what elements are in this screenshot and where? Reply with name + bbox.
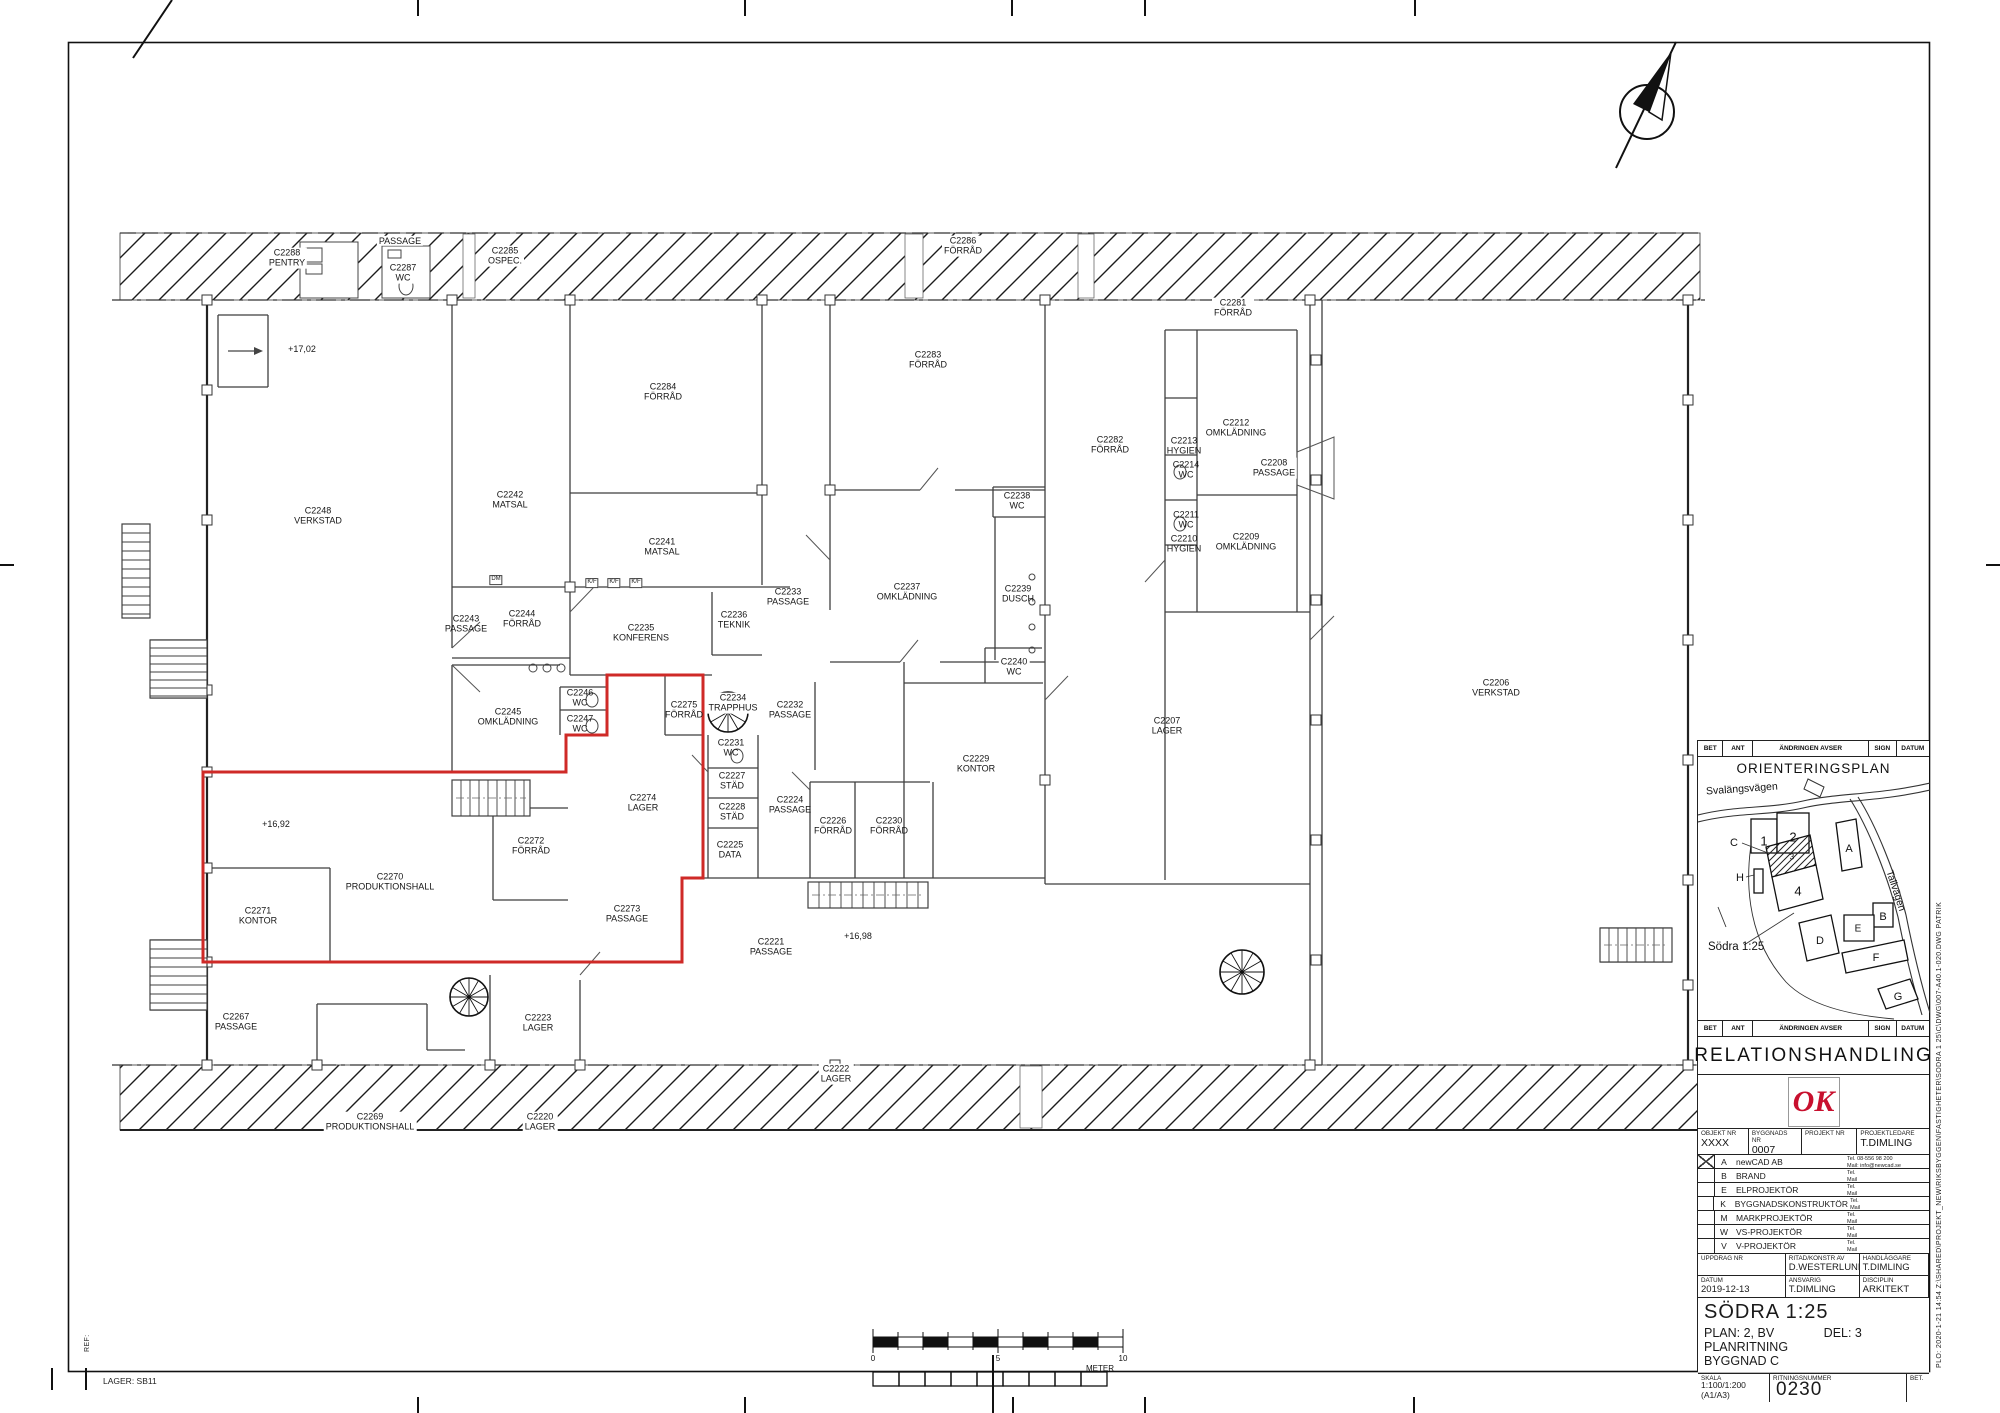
drawing-number-field: RITNINGSNUMMER 0007-A40.1-0230 xyxy=(1770,1374,1907,1402)
floor-plan-drawing: C2288PENTRYPASSAGEC2287WCC2285OSPEC.C228… xyxy=(0,0,2000,1413)
room-label: C2286FÖRRÅD xyxy=(942,236,984,257)
consultant-row: MMARKPROJEKTÖRTel.Mail xyxy=(1698,1211,1929,1225)
bet-label: BET. xyxy=(1910,1375,1926,1382)
room-label: C2285OSPEC. xyxy=(486,246,524,267)
room-label: C2244FÖRRÅD xyxy=(503,609,541,630)
bet-field: BET. xyxy=(1907,1374,1929,1402)
room-label: C2273PASSAGE xyxy=(606,904,648,925)
orientation-building-label: 3 xyxy=(1790,853,1794,862)
room-label: C2270PRODUKTIONSHALL xyxy=(346,872,435,893)
room-label: C2272FÖRRÅD xyxy=(512,836,550,857)
room-label: C2221PASSAGE xyxy=(750,937,792,958)
room-label: C2234TRAPPHUS xyxy=(706,693,759,714)
room-label: C2212OMKLÄDNING xyxy=(1206,418,1267,439)
room-label: C2223LAGER xyxy=(523,1013,554,1034)
sanitary-fixtures xyxy=(529,465,1186,763)
fixture-label: K/F xyxy=(629,578,642,588)
info-field: UPPDRAG NR xyxy=(1698,1254,1786,1276)
room-label: C2230FÖRRÅD xyxy=(870,816,908,837)
room-label: C2242MATSAL xyxy=(492,490,527,511)
orientation-building-label: B xyxy=(1879,911,1886,923)
room-label: C2227STÄD xyxy=(719,771,746,792)
rev-header-cell: SIGN xyxy=(1869,741,1897,756)
orientation-title: ORIENTERINGSPLAN xyxy=(1698,761,1929,776)
room-label: C2229KONTOR xyxy=(957,754,995,775)
room-label: C2282FÖRRÅD xyxy=(1091,435,1129,456)
info-field: DATUM2019-12-13 xyxy=(1698,1276,1786,1298)
rev-header-cell: ANT xyxy=(1723,1021,1753,1036)
room-label: C2210HYGIEN xyxy=(1167,534,1202,555)
ref-margin-text: REF: xyxy=(84,1334,91,1352)
level-annotation: +17,02 xyxy=(288,344,316,354)
scale-bar xyxy=(873,1329,1123,1353)
room-label: C2240WC xyxy=(999,657,1030,678)
orientation-building-label: C xyxy=(1730,837,1738,849)
level-annotation: +16,98 xyxy=(844,931,872,941)
scale-tick-5: 5 xyxy=(996,1354,1000,1363)
room-label: C2247WC xyxy=(567,714,594,735)
fixture-label: DM xyxy=(489,575,502,585)
orientation-building-label: F xyxy=(1873,952,1880,964)
scale-tick-0: 0 xyxy=(871,1354,875,1363)
orientation-building-label: G xyxy=(1894,991,1903,1003)
room-label: PASSAGE xyxy=(377,236,423,246)
project-field: OBJEKT NRXXXX xyxy=(1698,1129,1749,1154)
orientation-building-label: D xyxy=(1816,935,1824,947)
room-label: C2220LAGER xyxy=(523,1112,558,1133)
room-label: C2214WC xyxy=(1173,460,1200,481)
drawing-title-area: SÖDRA 1:25 xyxy=(1704,1301,1923,1324)
rev-header-cell: ANT xyxy=(1723,741,1753,756)
interior-walls xyxy=(150,300,1672,1065)
room-label: C2271KONTOR xyxy=(239,906,277,927)
room-label: C2287WC xyxy=(388,263,419,284)
room-label: C2283FÖRRÅD xyxy=(909,350,947,371)
room-label: C2226FÖRRÅD xyxy=(814,816,852,837)
room-label: C2284FÖRRÅD xyxy=(644,382,682,403)
info-field: DISCIPLINARKITEKT xyxy=(1860,1276,1929,1298)
rev-header-cell: BET xyxy=(1698,741,1723,756)
consultant-table: AnewCAD ABTel. 08-556 98 200Mail: info@n… xyxy=(1698,1155,1929,1254)
room-label: C2237OMKLÄDNING xyxy=(877,582,938,603)
project-field: BYGGNADS NR0007 xyxy=(1749,1129,1802,1154)
project-fields: OBJEKT NRXXXXBYGGNADS NR0007PROJEKT NRPR… xyxy=(1698,1129,1929,1155)
scale-tick-10: 10 xyxy=(1119,1354,1128,1363)
revision-header-top: BETANTÄNDRINGEN AVSERSIGNDATUM xyxy=(1698,741,1929,757)
orientation-building-label: A xyxy=(1845,843,1852,855)
rev-header-cell: ÄNDRINGEN AVSER xyxy=(1753,741,1869,756)
room-label: C2274LAGER xyxy=(628,793,659,814)
room-label: C2213HYGIEN xyxy=(1167,436,1202,457)
room-label: C2206VERKSTAD xyxy=(1472,678,1520,699)
room-label: C2245OMKLÄDNING xyxy=(478,707,539,728)
drawing-title: SÖDRA 1:25 PLAN: 2, BV DEL: 3 PLANRITNIN… xyxy=(1698,1298,1929,1374)
room-label: C2211WC xyxy=(1173,510,1199,531)
scale-field: SKALA 1:100/1:200 (A1/A3) xyxy=(1698,1374,1770,1402)
room-label: C2275FÖRRÅD xyxy=(665,700,703,721)
drawing-title-type: PLANRITNING xyxy=(1704,1340,1923,1354)
rev-header-cell: DATUM xyxy=(1897,1021,1929,1036)
info-field: ANSVARIGT.DIMLING xyxy=(1786,1276,1860,1298)
project-field: PROJEKT NR xyxy=(1802,1129,1857,1154)
title-block: BETANTÄNDRINGEN AVSERSIGNDATUM xyxy=(1697,740,1929,1372)
room-label: C2233PASSAGE xyxy=(767,587,809,608)
room-label: C2236TEKNIK xyxy=(718,610,751,631)
room-label: C2241MATSAL xyxy=(644,537,679,558)
rev-header-cell: DATUM xyxy=(1897,741,1929,756)
consultant-row: KBYGGNADSKONSTRUKTÖRTel.Mail xyxy=(1698,1197,1929,1211)
entrance-arrow-icon xyxy=(228,347,263,355)
consultant-row: AnewCAD ABTel. 08-556 98 200Mail: info@n… xyxy=(1698,1155,1929,1169)
rev-header-cell: ÄNDRINGEN AVSER xyxy=(1753,1021,1869,1036)
room-label: C2267PASSAGE xyxy=(215,1012,257,1033)
room-label: C2222LAGER xyxy=(819,1064,854,1085)
room-label: C2228STÄD xyxy=(719,802,746,823)
room-label: C2207LAGER xyxy=(1152,716,1183,737)
consultant-row: EELPROJEKTÖRTel.Mail xyxy=(1698,1183,1929,1197)
consultant-row: BBRANDTel.Mail xyxy=(1698,1169,1929,1183)
orientation-building-label: 2 xyxy=(1789,830,1796,845)
passage-arrow-shape xyxy=(1297,437,1334,499)
title-block-bottom-row: SKALA 1:100/1:200 (A1/A3) RITNINGSNUMMER… xyxy=(1698,1374,1929,1402)
drawing-title-del: DEL: 3 xyxy=(1824,1326,1862,1340)
orientation-plan: ORIENTERINGSPLAN Svalängsvägen Tallvägen… xyxy=(1698,757,1929,1021)
orientation-building-label: H xyxy=(1736,872,1744,884)
project-field: PROJEKTLEDARET.DIMLING xyxy=(1857,1129,1929,1154)
orientation-building-label: E xyxy=(1855,924,1862,935)
area-label: Södra 1:25 xyxy=(1708,941,1764,953)
room-label: C2281FÖRRÅD xyxy=(1212,298,1254,319)
revision-header-bottom: BETANTÄNDRINGEN AVSERSIGNDATUM xyxy=(1698,1021,1929,1037)
orientation-building-label: 1 xyxy=(1760,834,1767,849)
room-label: C2288PENTRY xyxy=(267,248,307,269)
consultant-row: VV-PROJEKTÖRTel.Mail xyxy=(1698,1239,1929,1253)
rev-header-cell: SIGN xyxy=(1869,1021,1897,1036)
drawing-title-building: BYGGNAD C xyxy=(1704,1354,1923,1368)
drawing-number-value: 0007-A40.1-0230 xyxy=(1776,1374,1906,1401)
scale-value: 1:100/1:200 (A1/A3) xyxy=(1701,1380,1769,1400)
info-field: HANDLÄGGARET.DIMLING xyxy=(1860,1254,1929,1276)
room-label: C2248VERKSTAD xyxy=(294,506,342,527)
plot-stamp-text: PLO: 2020-1-21 14:54 Z:\SHARED\PROJEKT_N… xyxy=(1936,738,1943,1368)
room-label: C2208PASSAGE xyxy=(1251,458,1297,479)
room-label: C2232PASSAGE xyxy=(769,700,811,721)
logo-section: OK xyxy=(1698,1075,1929,1129)
document-type: RELATIONSHANDLING xyxy=(1698,1037,1929,1075)
room-label: C2246WC xyxy=(567,688,594,709)
drawing-title-plan: PLAN: 2, BV xyxy=(1704,1326,1774,1340)
info-grid: UPPDRAG NRRITAD/KONSTR AVD.WESTERLUNDHAN… xyxy=(1698,1254,1929,1298)
room-label: C2243PASSAGE xyxy=(445,614,487,635)
scale-unit: METER xyxy=(1086,1364,1114,1373)
room-label: C2225DATA xyxy=(717,840,744,861)
info-field: RITAD/KONSTR AVD.WESTERLUND xyxy=(1786,1254,1860,1276)
room-label: C2209OMKLÄDNING xyxy=(1216,532,1277,553)
layer-note: LAGER: SB11 xyxy=(103,1376,157,1386)
room-label: C2235KONFERENS xyxy=(613,623,669,644)
fixture-label: K/F xyxy=(607,578,620,588)
north-arrow-icon xyxy=(1616,42,1676,168)
fixture-label: K/F xyxy=(585,578,598,588)
room-label: C2269PRODUKTIONSHALL xyxy=(324,1112,417,1133)
level-annotation: +16,92 xyxy=(262,819,290,829)
rev-header-cell: BET xyxy=(1698,1021,1723,1036)
room-label: C2224PASSAGE xyxy=(769,795,811,816)
room-label: C2239DUSCH xyxy=(1002,584,1034,605)
room-label: C2238WC xyxy=(1002,491,1033,512)
ok-logo-text: OK xyxy=(1793,1085,1835,1119)
consultant-row: WVS-PROJEKTÖRTel.Mail xyxy=(1698,1225,1929,1239)
orientation-building-label: 4 xyxy=(1794,884,1801,899)
room-label: C2231WC xyxy=(718,738,745,759)
ok-logo: OK xyxy=(1788,1077,1840,1127)
